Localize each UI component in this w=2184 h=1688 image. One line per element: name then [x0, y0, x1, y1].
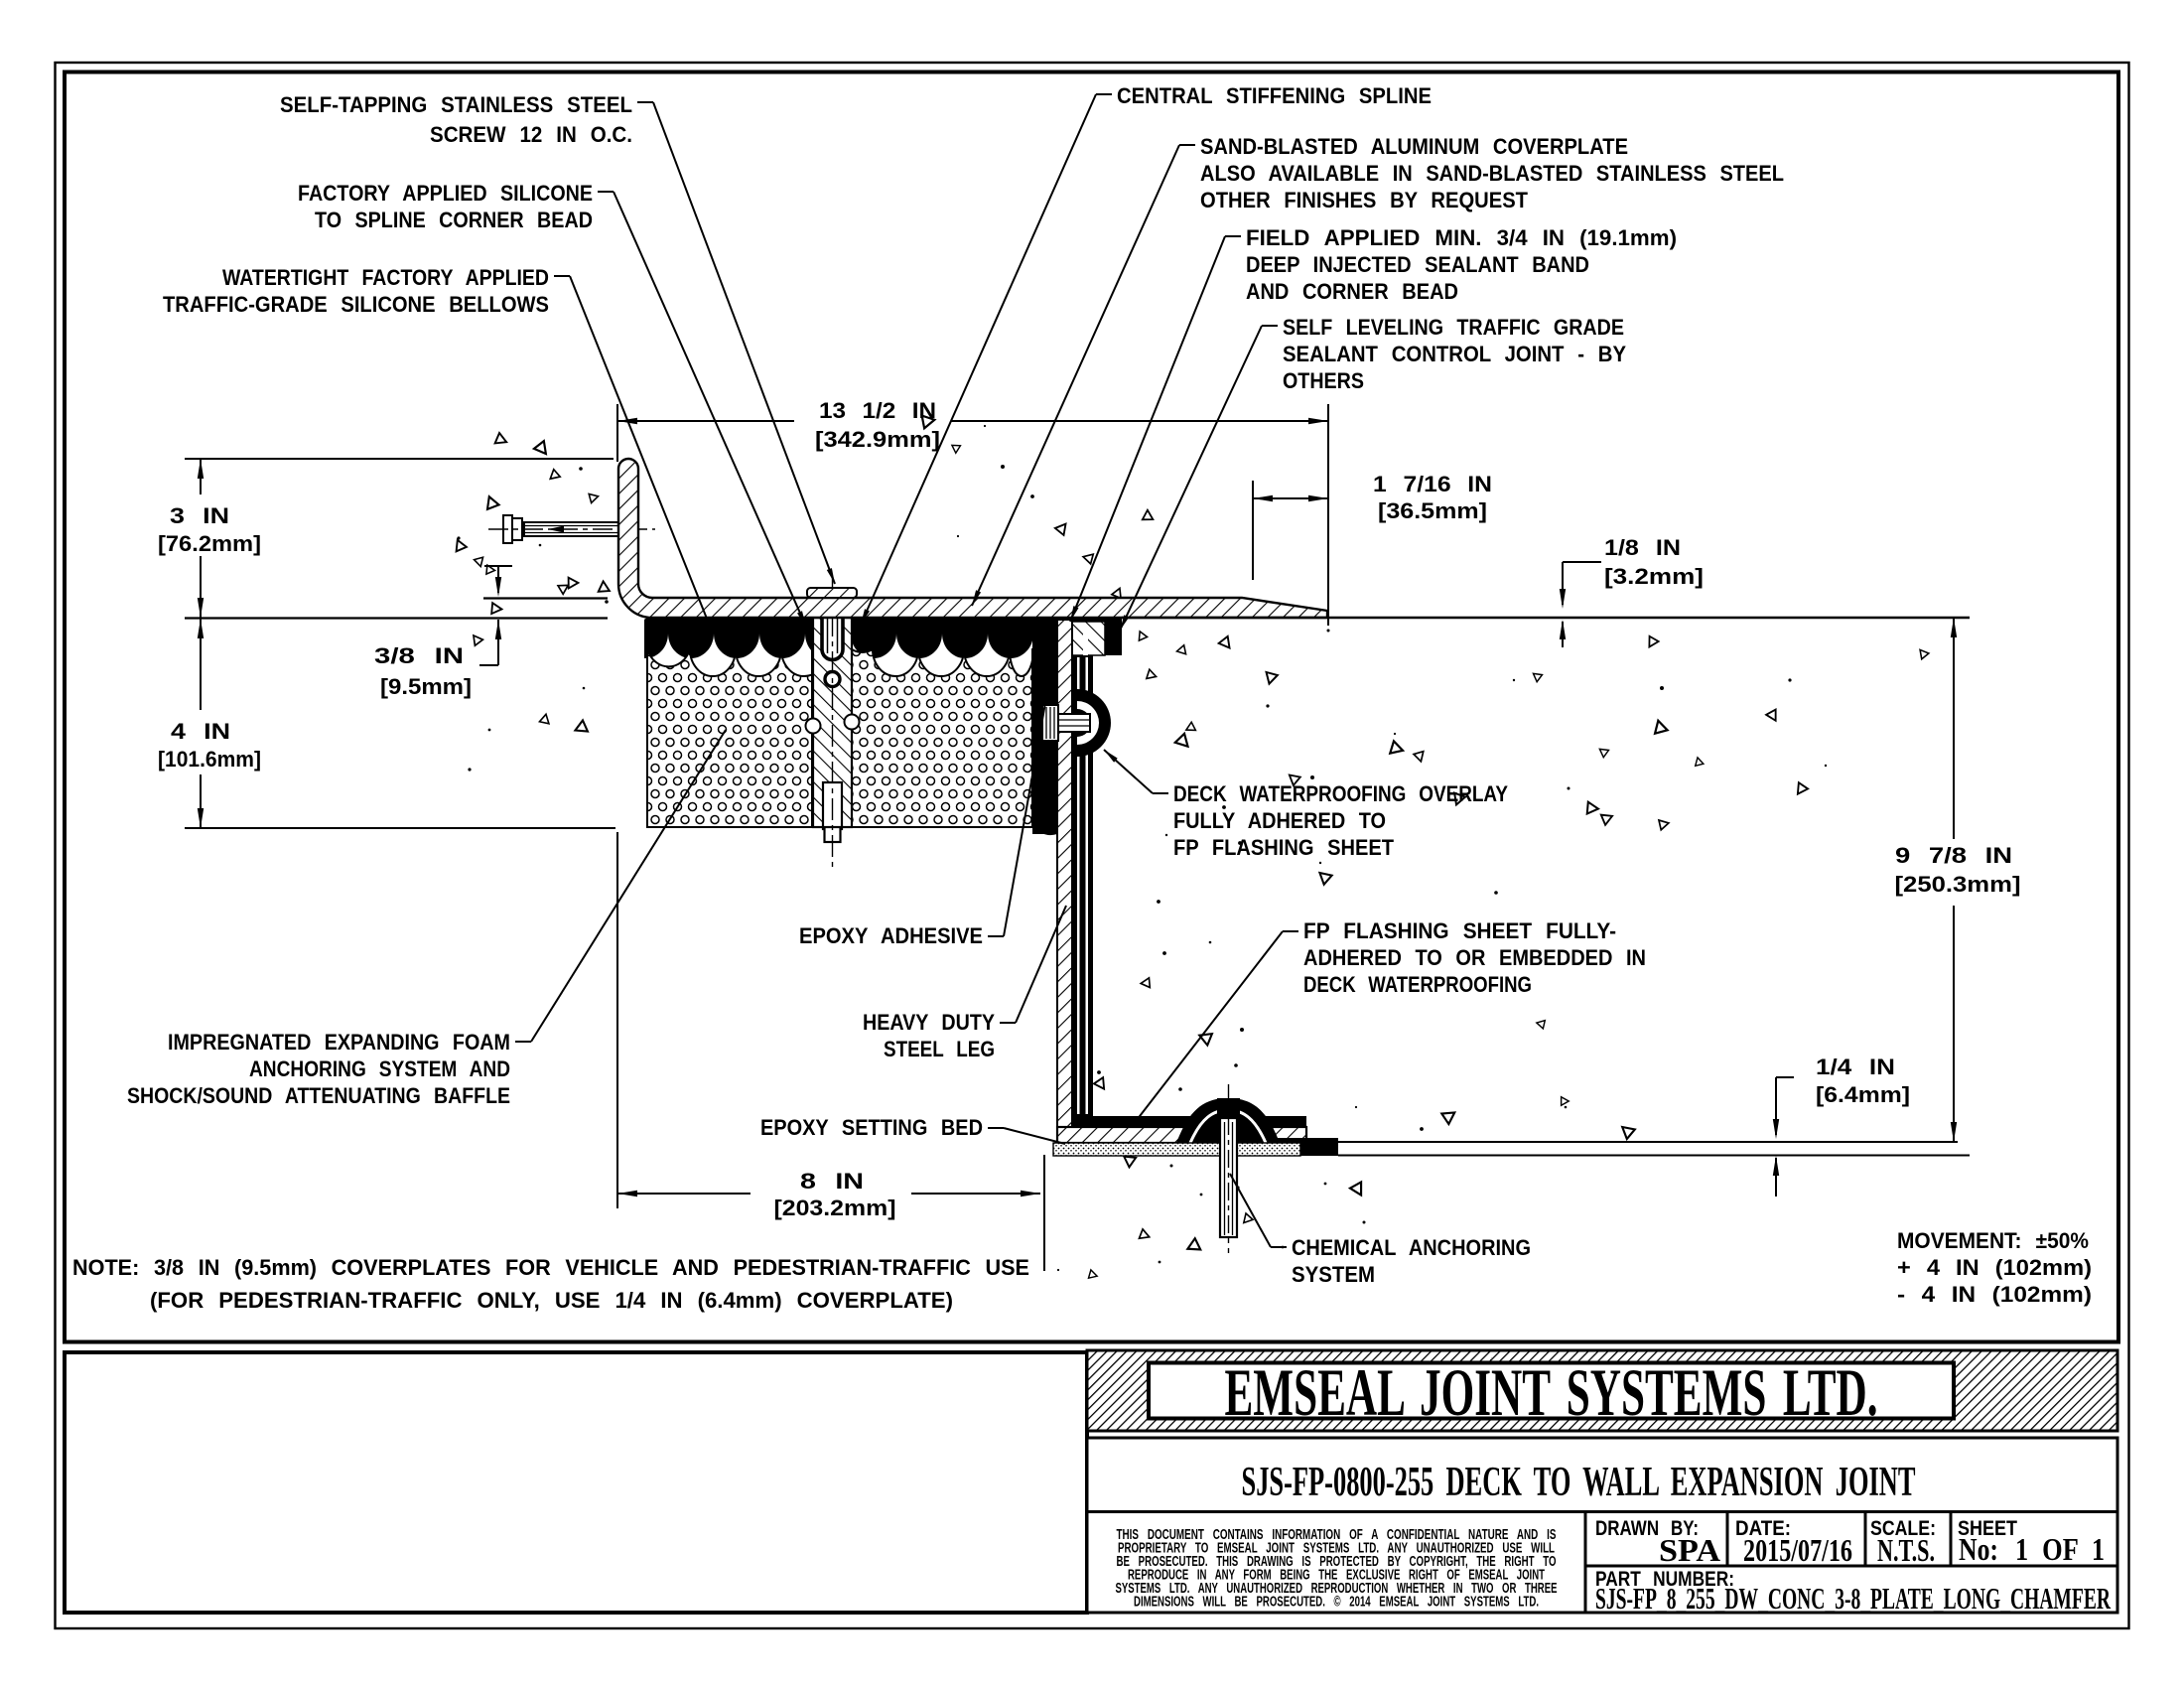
- svg-text:MOVEMENT: ±50%: MOVEMENT: ±50%: [1897, 1228, 2089, 1253]
- svg-text:TRAFFIC-GRADE SILICONE BELLOWS: TRAFFIC-GRADE SILICONE BELLOWS: [163, 292, 549, 317]
- svg-text:WATERTIGHT FACTORY APPLIED: WATERTIGHT FACTORY APPLIED: [222, 265, 549, 290]
- svg-text:FP FLASHING SHEET FULLY-: FP FLASHING SHEET FULLY-: [1303, 918, 1616, 943]
- svg-text:STEEL LEG: STEEL LEG: [884, 1037, 995, 1061]
- svg-text:- 4 IN (102mm): - 4 IN (102mm): [1897, 1282, 2092, 1307]
- svg-text:No:: No:: [1959, 1531, 1998, 1567]
- svg-text:2015/07/16: 2015/07/16: [1743, 1532, 1852, 1568]
- svg-text:SCREW 12 IN O.C.: SCREW 12 IN O.C.: [430, 122, 632, 147]
- svg-text:13 1/2 IN: 13 1/2 IN: [819, 398, 936, 423]
- svg-text:SELF LEVELING TRAFFIC GRADE: SELF LEVELING TRAFFIC GRADE: [1283, 315, 1624, 340]
- svg-text:IMPREGNATED EXPANDING FOAM: IMPREGNATED EXPANDING FOAM: [168, 1030, 510, 1055]
- svg-text:[36.5mm]: [36.5mm]: [1378, 498, 1487, 523]
- svg-text:1 OF 1: 1 OF 1: [2015, 1531, 2105, 1567]
- svg-text:9 7/8 IN: 9 7/8 IN: [1895, 843, 2012, 868]
- svg-text:FACTORY APPLIED SILICONE: FACTORY APPLIED SILICONE: [298, 181, 593, 206]
- svg-text:(FOR PEDESTRIAN-TRAFFIC ONLY,: (FOR PEDESTRIAN-TRAFFIC ONLY, USE 1/4 IN…: [150, 1288, 953, 1313]
- svg-text:3/8 IN: 3/8 IN: [374, 643, 464, 668]
- svg-text:SPA: SPA: [1659, 1532, 1720, 1568]
- svg-text:DECK WATERPROOFING: DECK WATERPROOFING: [1303, 972, 1532, 997]
- svg-text:ANCHORING SYSTEM AND: ANCHORING SYSTEM AND: [249, 1056, 510, 1081]
- svg-text:EMSEAL JOINT SYSTEMS LTD.: EMSEAL JOINT SYSTEMS LTD.: [1225, 1354, 1878, 1430]
- svg-text:4 IN: 4 IN: [171, 719, 230, 744]
- svg-text:OTHER FINISHES BY REQUEST: OTHER FINISHES BY REQUEST: [1200, 188, 1528, 212]
- svg-text:TO SPLINE CORNER BEAD: TO SPLINE CORNER BEAD: [315, 208, 593, 232]
- svg-text:FIELD APPLIED MIN. 3/4 IN (19.: FIELD APPLIED MIN. 3/4 IN (19.1mm): [1246, 225, 1677, 250]
- svg-text:DECK WATERPROOFING OVERLAY: DECK WATERPROOFING OVERLAY: [1173, 781, 1508, 806]
- svg-text:CENTRAL STIFFENING SPLINE: CENTRAL STIFFENING SPLINE: [1117, 83, 1432, 108]
- svg-text:DEEP INJECTED SEALANT BAND: DEEP INJECTED SEALANT BAND: [1246, 252, 1589, 277]
- svg-text:8 IN: 8 IN: [800, 1169, 864, 1194]
- svg-text:[3.2mm]: [3.2mm]: [1604, 564, 1704, 589]
- svg-text:[101.6mm]: [101.6mm]: [158, 747, 261, 772]
- svg-text:1/8 IN: 1/8 IN: [1604, 535, 1681, 560]
- svg-text:ALSO AVAILABLE IN SAND-BLASTED: ALSO AVAILABLE IN SAND-BLASTED STAINLESS…: [1200, 161, 1784, 186]
- svg-text:FP FLASHING SHEET: FP FLASHING SHEET: [1173, 835, 1394, 860]
- svg-text:[76.2mm]: [76.2mm]: [158, 531, 261, 556]
- svg-text:SAND-BLASTED ALUMINUM COVERPLA: SAND-BLASTED ALUMINUM COVERPLATE: [1200, 134, 1628, 159]
- svg-text:AND CORNER BEAD: AND CORNER BEAD: [1246, 279, 1458, 304]
- svg-text:OTHERS: OTHERS: [1283, 368, 1364, 393]
- svg-text:+ 4 IN (102mm): + 4 IN (102mm): [1897, 1255, 2092, 1280]
- svg-text:SJS-FP-0800-255 DECK TO WALL E: SJS-FP-0800-255 DECK TO WALL EXPANSION J…: [1242, 1460, 1916, 1505]
- svg-text:[342.9mm]: [342.9mm]: [815, 427, 940, 452]
- svg-text:[250.3mm]: [250.3mm]: [1895, 872, 2021, 897]
- svg-text:SJS-FP_8_255_DW_CONC_3-8_PLATE: SJS-FP_8_255_DW_CONC_3-8_PLATE_LONG_CHAM…: [1595, 1581, 2111, 1616]
- svg-text:HEAVY DUTY: HEAVY DUTY: [863, 1010, 995, 1035]
- svg-text:[6.4mm]: [6.4mm]: [1816, 1082, 1910, 1107]
- svg-text:[203.2mm]: [203.2mm]: [774, 1196, 896, 1220]
- svg-text:DIMENSIONS WILL BE PROSECUTED.: DIMENSIONS WILL BE PROSECUTED. © 2014 EM…: [1134, 1595, 1539, 1611]
- svg-text:EPOXY SETTING BED: EPOXY SETTING BED: [760, 1115, 983, 1140]
- svg-text:3 IN: 3 IN: [170, 503, 229, 528]
- svg-text:NOTE: 3/8 IN (9.5mm) COVERPLAT: NOTE: 3/8 IN (9.5mm) COVERPLATES FOR VEH…: [72, 1255, 1029, 1280]
- svg-text:1/4 IN: 1/4 IN: [1816, 1055, 1895, 1079]
- svg-text:SEALANT CONTROL JOINT - BY: SEALANT CONTROL JOINT - BY: [1283, 342, 1626, 366]
- svg-text:ADHERED TO OR EMBEDDED IN: ADHERED TO OR EMBEDDED IN: [1303, 945, 1646, 970]
- svg-text:FULLY ADHERED TO: FULLY ADHERED TO: [1173, 808, 1386, 833]
- svg-text:[9.5mm]: [9.5mm]: [380, 674, 472, 699]
- svg-text:SELF-TAPPING STAINLESS STEEL: SELF-TAPPING STAINLESS STEEL: [280, 92, 632, 117]
- svg-text:SYSTEM: SYSTEM: [1292, 1262, 1375, 1287]
- svg-text:CHEMICAL ANCHORING: CHEMICAL ANCHORING: [1292, 1235, 1531, 1260]
- svg-text:SHOCK/SOUND ATTENUATING BAFFLE: SHOCK/SOUND ATTENUATING BAFFLE: [127, 1083, 510, 1108]
- svg-text:1 7/16 IN: 1 7/16 IN: [1373, 472, 1492, 496]
- svg-text:N.T.S.: N.T.S.: [1877, 1532, 1935, 1568]
- svg-text:EPOXY ADHESIVE: EPOXY ADHESIVE: [799, 923, 983, 948]
